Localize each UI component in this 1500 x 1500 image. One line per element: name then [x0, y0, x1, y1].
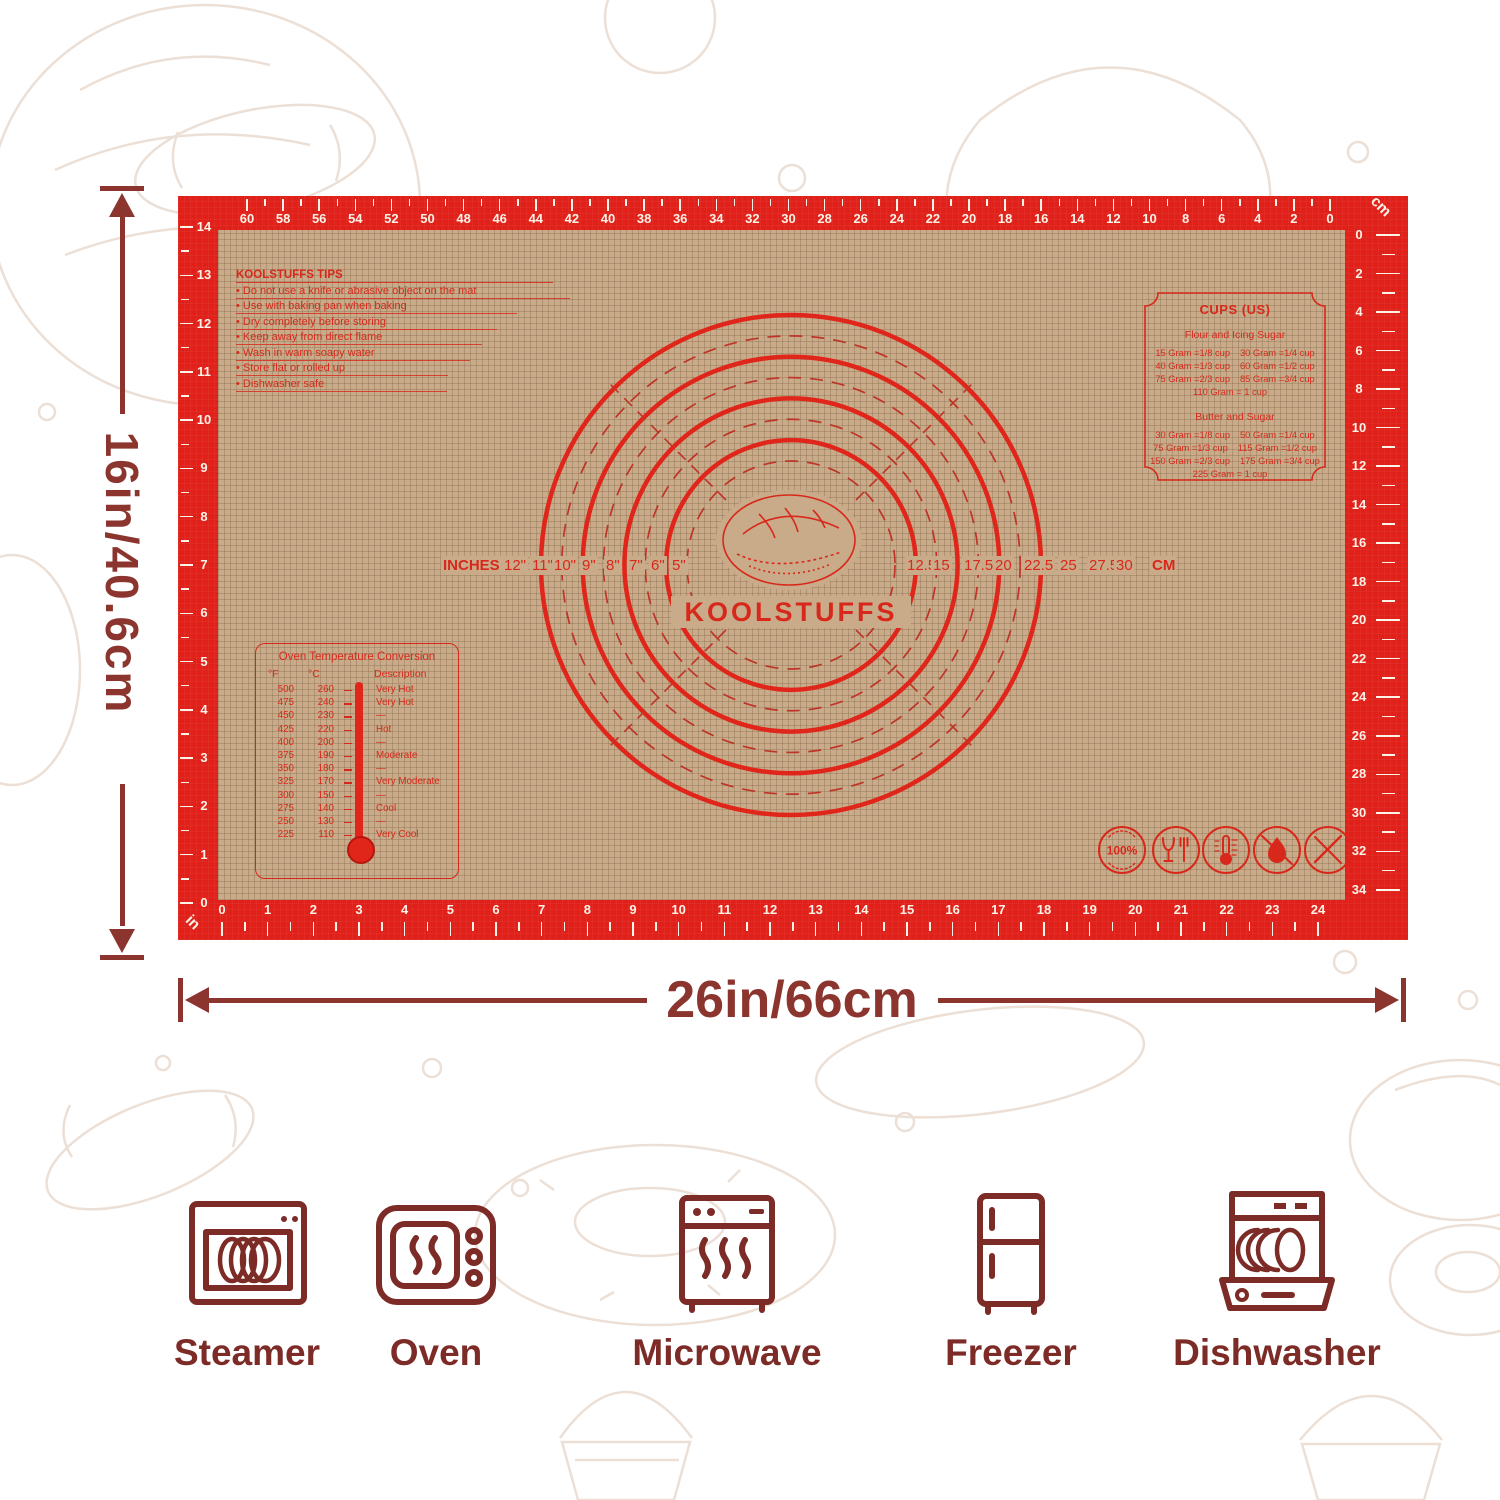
- ruler-label: 13: [801, 902, 831, 917]
- ruler-mark: [180, 468, 193, 470]
- tip-item: • Use with baking pan when baking: [236, 300, 517, 314]
- ruler-mark: [950, 199, 952, 206]
- ruler-mark: [838, 922, 840, 931]
- ruler-label: 50: [413, 211, 443, 226]
- ruler-label: 1: [253, 902, 283, 917]
- oven-cell: 110: [306, 829, 334, 840]
- ruler-mark: [842, 199, 844, 206]
- ruler-mark: [1376, 658, 1400, 660]
- ruler-mark: [1382, 369, 1395, 371]
- width-dimension-label: 26in/66cm: [666, 970, 918, 1030]
- ruler-mark: [221, 922, 223, 936]
- ruler-mark: [632, 922, 634, 936]
- ruler-label: 1: [192, 847, 216, 862]
- ruler-mark: [896, 199, 898, 211]
- ruler-mark: [427, 922, 429, 931]
- ruler-label: 42: [557, 211, 587, 226]
- ruler-mark: [180, 757, 193, 759]
- ruler-mark: [337, 199, 339, 206]
- dim-cap-top: [100, 186, 144, 191]
- ruler-label: 16: [1026, 211, 1056, 226]
- ruler-mark: [1221, 199, 1223, 211]
- ruler-mark: [788, 199, 790, 211]
- bread-illustration: [716, 490, 862, 590]
- badge-no-knife-icon: [1305, 827, 1351, 873]
- ruler-label: 12: [192, 316, 216, 331]
- oven-cell: 190: [306, 750, 334, 761]
- ruler-mark: [1382, 831, 1395, 833]
- ruler-label: 6: [1207, 211, 1237, 226]
- ruler-mark: [861, 922, 863, 936]
- oven-cell: [344, 822, 352, 823]
- ruler-mark: [1376, 504, 1400, 506]
- ruler-label: 0: [192, 895, 216, 910]
- ruler-mark: [883, 922, 885, 931]
- ruler-label: 8: [1346, 381, 1372, 396]
- ruler-mark: [181, 685, 189, 687]
- dim-cap-right: [1401, 978, 1406, 1022]
- dim-shaft: [938, 998, 1375, 1003]
- ruler-mark: [181, 444, 189, 446]
- ruler-mark: [746, 922, 748, 931]
- ruler-mark: [1376, 812, 1400, 814]
- ruler-label: 8: [192, 509, 216, 524]
- ruler-mark: [1382, 408, 1395, 410]
- ruler-label: 12: [1346, 458, 1372, 473]
- ruler-mark: [1382, 331, 1395, 333]
- ruler-label: 24: [1346, 689, 1372, 704]
- cups-value: 85 Gram =3/4 cup: [1240, 373, 1315, 386]
- oven-cell: [344, 835, 352, 836]
- ruler-mark: [1089, 922, 1091, 936]
- ruler-mark: [1167, 199, 1169, 206]
- ruler-label: 15: [892, 902, 922, 917]
- ruler-mark: [968, 199, 970, 211]
- ruler-mark: [181, 347, 189, 349]
- ruler-mark: [517, 199, 519, 206]
- oven-cell: [344, 703, 352, 704]
- oven-cell: Very Hot: [376, 697, 414, 708]
- ruler-label: 7: [527, 902, 557, 917]
- ruler-mark: [1066, 922, 1068, 931]
- ruler-mark: [587, 922, 589, 936]
- cups-value: 60 Gram =1/2 cup: [1240, 360, 1315, 373]
- ruler-mark: [1382, 254, 1395, 256]
- freezer-icon: [936, 1178, 1086, 1328]
- ruler-mark: [445, 199, 447, 206]
- oven-cell: [344, 730, 352, 731]
- cups-value: 15 Gram =1/8 cup: [1155, 347, 1230, 360]
- ruler-mark: [181, 637, 189, 639]
- oven-cell: 500: [266, 684, 294, 695]
- ruler-mark: [1382, 639, 1395, 641]
- ruler-label: 44: [521, 211, 551, 226]
- cups-row: 150 Gram =2/3 cup175 Gram =3/4 cup: [1150, 455, 1320, 468]
- ruler-mark: [1376, 774, 1400, 776]
- ruler-mark: [1022, 199, 1024, 206]
- ruler-mark: [355, 199, 357, 211]
- oven-cell: 180: [306, 763, 334, 774]
- ruler-mark: [1376, 619, 1400, 621]
- ruler-mark: [181, 492, 189, 494]
- ruler-label: 10: [1135, 211, 1165, 226]
- ruler-label: 60: [232, 211, 262, 226]
- oven-cell: [344, 769, 352, 770]
- steamer-icon: [172, 1178, 322, 1328]
- ruler-label: 28: [1346, 766, 1372, 781]
- oven-icon: [361, 1178, 511, 1328]
- ruler-mark: [267, 922, 269, 936]
- oven-cell: 240: [306, 697, 334, 708]
- ruler-mark: [1112, 922, 1114, 931]
- ruler-mark: [180, 419, 193, 421]
- cups-section-heading: Butter and Sugar: [1150, 411, 1320, 423]
- product-image: 0246810121416182022242628303234363840424…: [0, 0, 1500, 1500]
- oven-cell: Very Hot: [376, 684, 414, 695]
- ruler-label: 10: [664, 902, 694, 917]
- dim-shaft: [120, 216, 125, 414]
- cups-value: 50 Gram =1/4 cup: [1240, 429, 1315, 442]
- oven-cell: 300: [266, 790, 294, 801]
- cups-value: 40 Gram =1/3 cup: [1155, 360, 1230, 373]
- appliance-label-oven: Oven: [306, 1332, 566, 1374]
- ruler-mark: [180, 709, 193, 711]
- ruler-mark: [1376, 581, 1400, 583]
- thermometer-bulb: [347, 836, 375, 864]
- oven-cell: 260: [306, 684, 334, 695]
- cups-row: 75 Gram =1/3 cup115 Gram =1/2 cup: [1150, 442, 1320, 455]
- ruler-mark: [409, 199, 411, 206]
- ruler-mark: [1294, 922, 1296, 931]
- ruler-mark: [1135, 922, 1137, 936]
- ruler-label: 6: [1346, 343, 1372, 358]
- ruler-label: 12: [755, 902, 785, 917]
- ruler-mark: [878, 199, 880, 206]
- ruler-mark: [495, 922, 497, 936]
- ruler-mark: [180, 516, 193, 518]
- ruler-mark: [1249, 922, 1251, 931]
- ruler-mark: [1382, 446, 1395, 448]
- ruler-label: 32: [737, 211, 767, 226]
- ruler-label: 22: [1212, 902, 1242, 917]
- tip-item: • Wash in warm soapy water: [236, 347, 470, 361]
- ruler-label: 10: [1346, 420, 1372, 435]
- ruler-label: 30: [774, 211, 804, 226]
- ruler-mark: [1040, 199, 1042, 211]
- ruler-mark: [609, 922, 611, 931]
- ruler-mark: [180, 806, 193, 808]
- oven-cell: Hot: [376, 724, 391, 735]
- ruler-mark: [1077, 199, 1079, 211]
- ruler-label: 12: [1098, 211, 1128, 226]
- oven-cell: Very Cool: [376, 829, 418, 840]
- ruler-mark: [180, 854, 193, 856]
- ruler-mark: [932, 199, 934, 211]
- tip-item: • Dry completely before storing: [236, 316, 497, 330]
- ruler-label: 2: [1346, 266, 1372, 281]
- ruler-label: 16: [1346, 535, 1372, 550]
- ruler-label: 2: [1279, 211, 1309, 226]
- cups-value: 75 Gram =1/3 cup: [1153, 442, 1228, 455]
- ruler-mark: [181, 782, 189, 784]
- ruler-mark: [1376, 388, 1400, 390]
- ruler-mark: [427, 199, 429, 211]
- ruler-label: 26: [846, 211, 876, 226]
- oven-cell: Moderate: [376, 750, 417, 761]
- ruler-mark: [1203, 922, 1205, 931]
- ruler-mark: [181, 588, 189, 590]
- oven-cell: 250: [266, 816, 294, 827]
- ruler-label: 4: [1243, 211, 1273, 226]
- ruler-label: 34: [701, 211, 731, 226]
- appliance-label-dishwasher: Dishwasher: [1147, 1332, 1407, 1374]
- dim-arrowhead-down: [109, 929, 135, 953]
- oven-cell: 230: [306, 710, 334, 721]
- ruler-mark: [679, 199, 681, 211]
- ruler-label: 11: [709, 902, 739, 917]
- ruler-label: 40: [593, 211, 623, 226]
- ruler-mark: [1239, 199, 1241, 206]
- brand-logo: KOOLSTUFFS: [671, 596, 911, 628]
- ruler-mark: [661, 199, 663, 206]
- ruler-label: 10: [192, 412, 216, 427]
- dim-cap-left: [178, 978, 183, 1022]
- ruler-mark: [564, 922, 566, 931]
- ruler-mark: [698, 199, 700, 206]
- ruler-mark: [180, 275, 193, 277]
- ruler-mark: [181, 395, 189, 397]
- cups-row: 30 Gram =1/8 cup50 Gram =1/4 cup: [1150, 429, 1320, 442]
- ruler-mark: [1382, 716, 1395, 718]
- ruler-label: 54: [340, 211, 370, 226]
- oven-cell: [344, 782, 352, 783]
- ruler-label: 22: [918, 211, 948, 226]
- ruler-mark: [975, 922, 977, 931]
- microwave-icon: [652, 1178, 802, 1328]
- oven-cell: [344, 743, 352, 744]
- ruler-mark: [1043, 922, 1045, 936]
- ruler-mark: [1376, 735, 1400, 737]
- ruler-mark: [1376, 696, 1400, 698]
- ruler-label: 18: [1029, 902, 1059, 917]
- ruler-mark: [450, 922, 452, 936]
- oven-cell: 325: [266, 776, 294, 787]
- ruler-mark: [181, 299, 189, 301]
- ruler-mark: [678, 922, 680, 936]
- cups-content: Flour and Icing Sugar15 Gram =1/8 cup30 …: [1150, 329, 1320, 481]
- ruler-label: 6: [192, 605, 216, 620]
- width-dimension-annotation: 26in/66cm: [178, 976, 1406, 1024]
- badge-temperature-icon: [1203, 827, 1249, 873]
- ruler-mark: [404, 922, 406, 936]
- tip-item: • Store flat or rolled up: [236, 362, 448, 376]
- ruler-mark: [181, 830, 189, 832]
- ruler-label: 2: [192, 798, 216, 813]
- ruler-mark: [180, 371, 193, 373]
- ruler-label: 4: [192, 702, 216, 717]
- ruler-label: 17: [983, 902, 1013, 917]
- oven-cell: 350: [266, 763, 294, 774]
- oven-cell: —: [376, 816, 386, 827]
- oven-temperature-box: Oven Temperature Conversion °F °C Descri…: [255, 643, 459, 879]
- in-unit-corner-label: in: [182, 912, 203, 933]
- dim-cap-bottom: [100, 955, 144, 960]
- ruler-mark: [181, 878, 189, 880]
- ruler-mark: [264, 199, 266, 206]
- ruler-label: 56: [304, 211, 334, 226]
- ruler-label: 26: [1346, 728, 1372, 743]
- ruler-mark: [244, 922, 246, 931]
- ruler-label: 28: [810, 211, 840, 226]
- ruler-label: 18: [1346, 574, 1372, 589]
- ruler-mark: [1293, 199, 1295, 211]
- ruler-mark: [655, 922, 657, 931]
- ruler-mark: [1257, 199, 1259, 211]
- ruler-mark: [589, 199, 591, 206]
- ruler-mark: [282, 199, 284, 211]
- ruler-mark: [906, 922, 908, 936]
- ruler-label: 19: [1075, 902, 1105, 917]
- ruler-label: 24: [882, 211, 912, 226]
- ruler-mark: [860, 199, 862, 211]
- ruler-mark: [770, 199, 772, 206]
- ruler-mark: [180, 323, 193, 325]
- oven-cell: [344, 716, 352, 717]
- ruler-label: 23: [1257, 902, 1287, 917]
- oven-cell: Very Moderate: [376, 776, 440, 787]
- ruler-mark: [952, 922, 954, 936]
- badge-food-safe-icon: [1153, 827, 1199, 873]
- ruler-mark: [724, 922, 726, 936]
- ruler-mark: [463, 199, 465, 211]
- ruler-label: 5: [192, 654, 216, 669]
- appliance-label-freezer: Freezer: [881, 1332, 1141, 1374]
- ruler-mark: [246, 199, 248, 211]
- ruler-label: 8: [572, 902, 602, 917]
- ruler-label: 5: [435, 902, 465, 917]
- ruler-label: 9: [618, 902, 648, 917]
- tip-item: • Do not use a knife or abrasive object …: [236, 285, 570, 299]
- oven-cell: 225: [266, 829, 294, 840]
- ruler-mark: [806, 199, 808, 206]
- oven-cell: 220: [306, 724, 334, 735]
- ruler-mark: [381, 922, 383, 931]
- ruler-label: 46: [485, 211, 515, 226]
- ruler-mark: [1226, 922, 1228, 936]
- badge-no-flame-icon: [1254, 827, 1300, 873]
- oven-header-f: °F: [268, 668, 279, 680]
- ruler-mark: [1317, 922, 1319, 936]
- ruler-mark: [1382, 523, 1395, 525]
- ruler-label: 6: [481, 902, 511, 917]
- oven-cell: —: [376, 710, 386, 721]
- oven-cell: 425: [266, 724, 294, 735]
- ruler-label: 58: [268, 211, 298, 226]
- oven-header-c: °C: [308, 668, 320, 680]
- ruler-label: 36: [665, 211, 695, 226]
- ruler-label: 9: [192, 460, 216, 475]
- ruler-label: 14: [1062, 211, 1092, 226]
- dim-shaft: [120, 784, 125, 926]
- oven-cell: [344, 796, 352, 797]
- cups-row: 110 Gram = 1 cup: [1150, 386, 1320, 399]
- ruler-label: 0: [1346, 227, 1372, 242]
- ruler-mark: [769, 922, 771, 936]
- ruler-mark: [643, 199, 645, 211]
- ruler-label: 4: [390, 902, 420, 917]
- cups-value: 150 Gram =2/3 cup: [1150, 455, 1230, 468]
- ruler-label: 8: [1171, 211, 1201, 226]
- ruler-mark: [1382, 562, 1395, 564]
- ruler-mark: [1004, 199, 1006, 211]
- cups-value: 30 Gram =1/8 cup: [1155, 429, 1230, 442]
- ruler-mark: [181, 250, 189, 252]
- ruler-mark: [1382, 600, 1395, 602]
- ruler-mark: [1113, 199, 1115, 211]
- ruler-label: 14: [192, 219, 216, 234]
- ruler-label: 3: [192, 750, 216, 765]
- dim-shaft: [209, 998, 647, 1003]
- cups-conversion-box: CUPS (US) Flour and Icing Sugar15 Gram =…: [1140, 288, 1330, 485]
- ruler-mark: [1020, 922, 1022, 931]
- ruler-label: 38: [629, 211, 659, 226]
- ruler-mark: [1382, 870, 1395, 872]
- ruler-mark: [553, 199, 555, 206]
- ruler-label: 20: [954, 211, 984, 226]
- ruler-mark: [541, 922, 543, 936]
- cups-row: 15 Gram =1/8 cup30 Gram =1/4 cup: [1150, 347, 1320, 360]
- ruler-label: 18: [990, 211, 1020, 226]
- ruler-mark: [734, 199, 736, 206]
- cups-value: 115 Gram =1/2 cup: [1238, 442, 1317, 455]
- ruler-mark: [1203, 199, 1205, 206]
- ruler-mark: [499, 199, 501, 211]
- ruler-mark: [1311, 199, 1313, 206]
- ruler-label: 0: [207, 902, 237, 917]
- ruler-label: 14: [846, 902, 876, 917]
- ruler-label: 2: [298, 902, 328, 917]
- ruler-mark: [1149, 199, 1151, 211]
- ruler-mark: [571, 199, 573, 211]
- ruler-label: 14: [1346, 497, 1372, 512]
- cups-row: 225 Gram = 1 cup: [1150, 468, 1320, 481]
- cups-row: 75 Gram =2/3 cup85 Gram =3/4 cup: [1150, 373, 1320, 386]
- oven-cell: Cool: [376, 803, 396, 814]
- cups-value: 30 Gram =1/4 cup: [1240, 347, 1315, 360]
- ruler-mark: [998, 922, 1000, 936]
- ruler-mark: [929, 922, 931, 931]
- ruler-mark: [300, 199, 302, 206]
- ruler-mark: [481, 199, 483, 206]
- ruler-label: 34: [1346, 882, 1372, 897]
- ruler-mark: [986, 199, 988, 206]
- oven-cell: 400: [266, 737, 294, 748]
- ruler-label: 22: [1346, 651, 1372, 666]
- oven-table-title: Oven Temperature Conversion: [256, 651, 458, 663]
- height-dimension-annotation: 16in/40.6cm: [96, 186, 148, 960]
- ruler-mark: [1157, 922, 1159, 931]
- oven-cell: 275: [266, 803, 294, 814]
- ruler-mark: [358, 922, 360, 936]
- tip-item: • Keep away from direct flame: [236, 331, 482, 345]
- ruler-mark: [1376, 889, 1400, 891]
- ruler-mark: [335, 922, 337, 931]
- oven-cell: [344, 809, 352, 810]
- oven-cell: 450: [266, 710, 294, 721]
- height-dimension-label: 16in/40.6cm: [95, 432, 149, 715]
- certification-badges: 100%: [1080, 818, 1360, 882]
- ruler-label: 3: [344, 902, 374, 917]
